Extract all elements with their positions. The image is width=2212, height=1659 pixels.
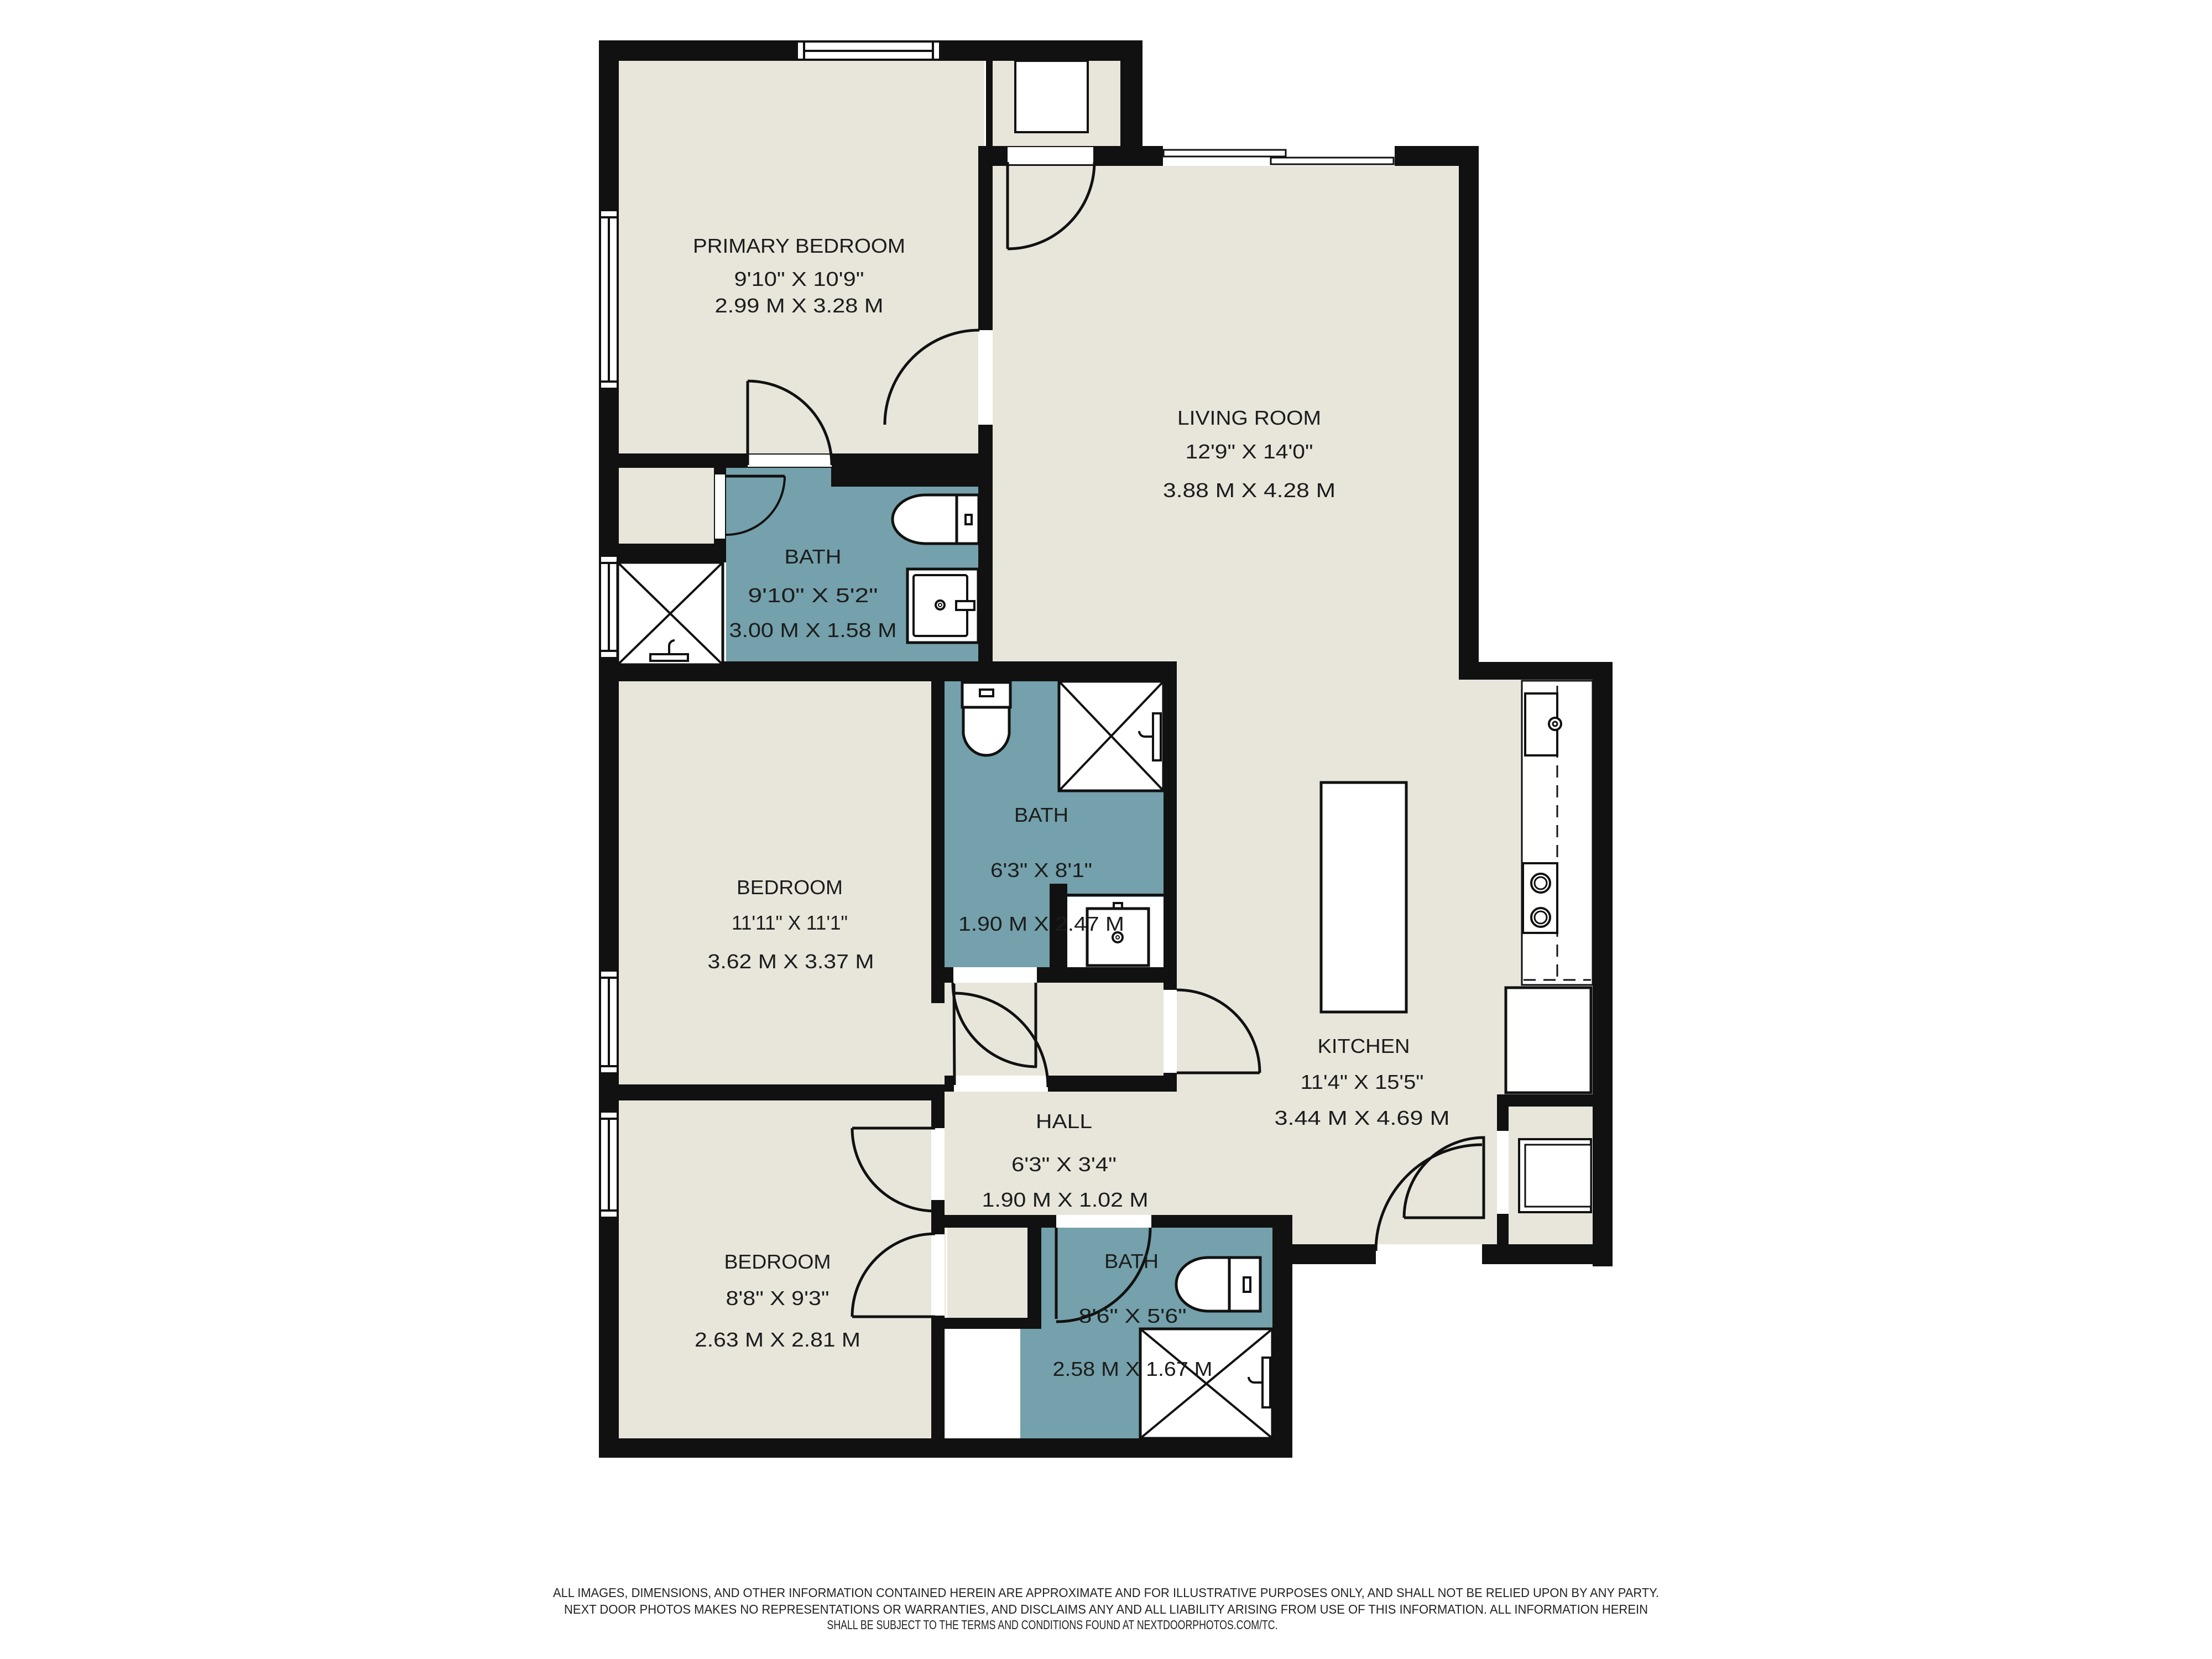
svg-text:9'10" X 10'9": 9'10" X 10'9" bbox=[734, 268, 864, 290]
svg-text:3.00 M X 1.58 M: 3.00 M X 1.58 M bbox=[729, 619, 897, 641]
svg-text:BATH: BATH bbox=[785, 545, 842, 568]
svg-text:BATH: BATH bbox=[1104, 1250, 1159, 1272]
svg-text:NEXT DOOR PHOTOS MAKES NO REPR: NEXT DOOR PHOTOS MAKES NO REPRESENTATION… bbox=[564, 1602, 1648, 1616]
svg-text:PRIMARY BEDROOM: PRIMARY BEDROOM bbox=[693, 234, 905, 257]
svg-text:3.62 M X 3.37 M: 3.62 M X 3.37 M bbox=[708, 950, 874, 973]
svg-text:BEDROOM: BEDROOM bbox=[737, 876, 843, 899]
svg-text:1.90 M X 1.02 M: 1.90 M X 1.02 M bbox=[982, 1188, 1149, 1211]
svg-text:KITCHEN: KITCHEN bbox=[1318, 1035, 1410, 1057]
svg-text:1.90 M X 2.47 M: 1.90 M X 2.47 M bbox=[958, 912, 1124, 935]
svg-text:12'9" X 14'0": 12'9" X 14'0" bbox=[1186, 440, 1313, 463]
svg-text:3.44 M X 4.69 M: 3.44 M X 4.69 M bbox=[1275, 1107, 1450, 1129]
svg-text:HALL: HALL bbox=[1036, 1110, 1092, 1133]
svg-text:LIVING ROOM: LIVING ROOM bbox=[1177, 406, 1321, 429]
svg-text:ALL IMAGES, DIMENSIONS, AND OT: ALL IMAGES, DIMENSIONS, AND OTHER INFORM… bbox=[553, 1585, 1659, 1600]
svg-text:11'11" X 11'1": 11'11" X 11'1" bbox=[732, 911, 848, 934]
svg-text:11'4" X 15'5": 11'4" X 15'5" bbox=[1301, 1071, 1424, 1093]
svg-text:2.99 M X 3.28 M: 2.99 M X 3.28 M bbox=[715, 294, 884, 317]
svg-text:2.58 M X 1.67 M: 2.58 M X 1.67 M bbox=[1053, 1358, 1213, 1380]
svg-text:BATH: BATH bbox=[1014, 804, 1068, 826]
svg-text:6'3" X 8'1": 6'3" X 8'1" bbox=[990, 859, 1092, 881]
svg-text:8'8" X 9'3": 8'8" X 9'3" bbox=[726, 1287, 830, 1310]
svg-text:3.88 M X 4.28 M: 3.88 M X 4.28 M bbox=[1163, 479, 1335, 502]
svg-text:SHALL BE SUBJECT TO THE TERMS: SHALL BE SUBJECT TO THE TERMS AND CONDIT… bbox=[827, 1618, 1278, 1632]
svg-text:9'10" X 5'2": 9'10" X 5'2" bbox=[748, 584, 878, 607]
svg-text:BEDROOM: BEDROOM bbox=[724, 1250, 831, 1273]
svg-text:6'3" X 3'4": 6'3" X 3'4" bbox=[1011, 1153, 1117, 1176]
svg-text:8'6" X 5'6": 8'6" X 5'6" bbox=[1079, 1305, 1187, 1327]
svg-text:2.63 M X 2.81 M: 2.63 M X 2.81 M bbox=[695, 1328, 860, 1351]
